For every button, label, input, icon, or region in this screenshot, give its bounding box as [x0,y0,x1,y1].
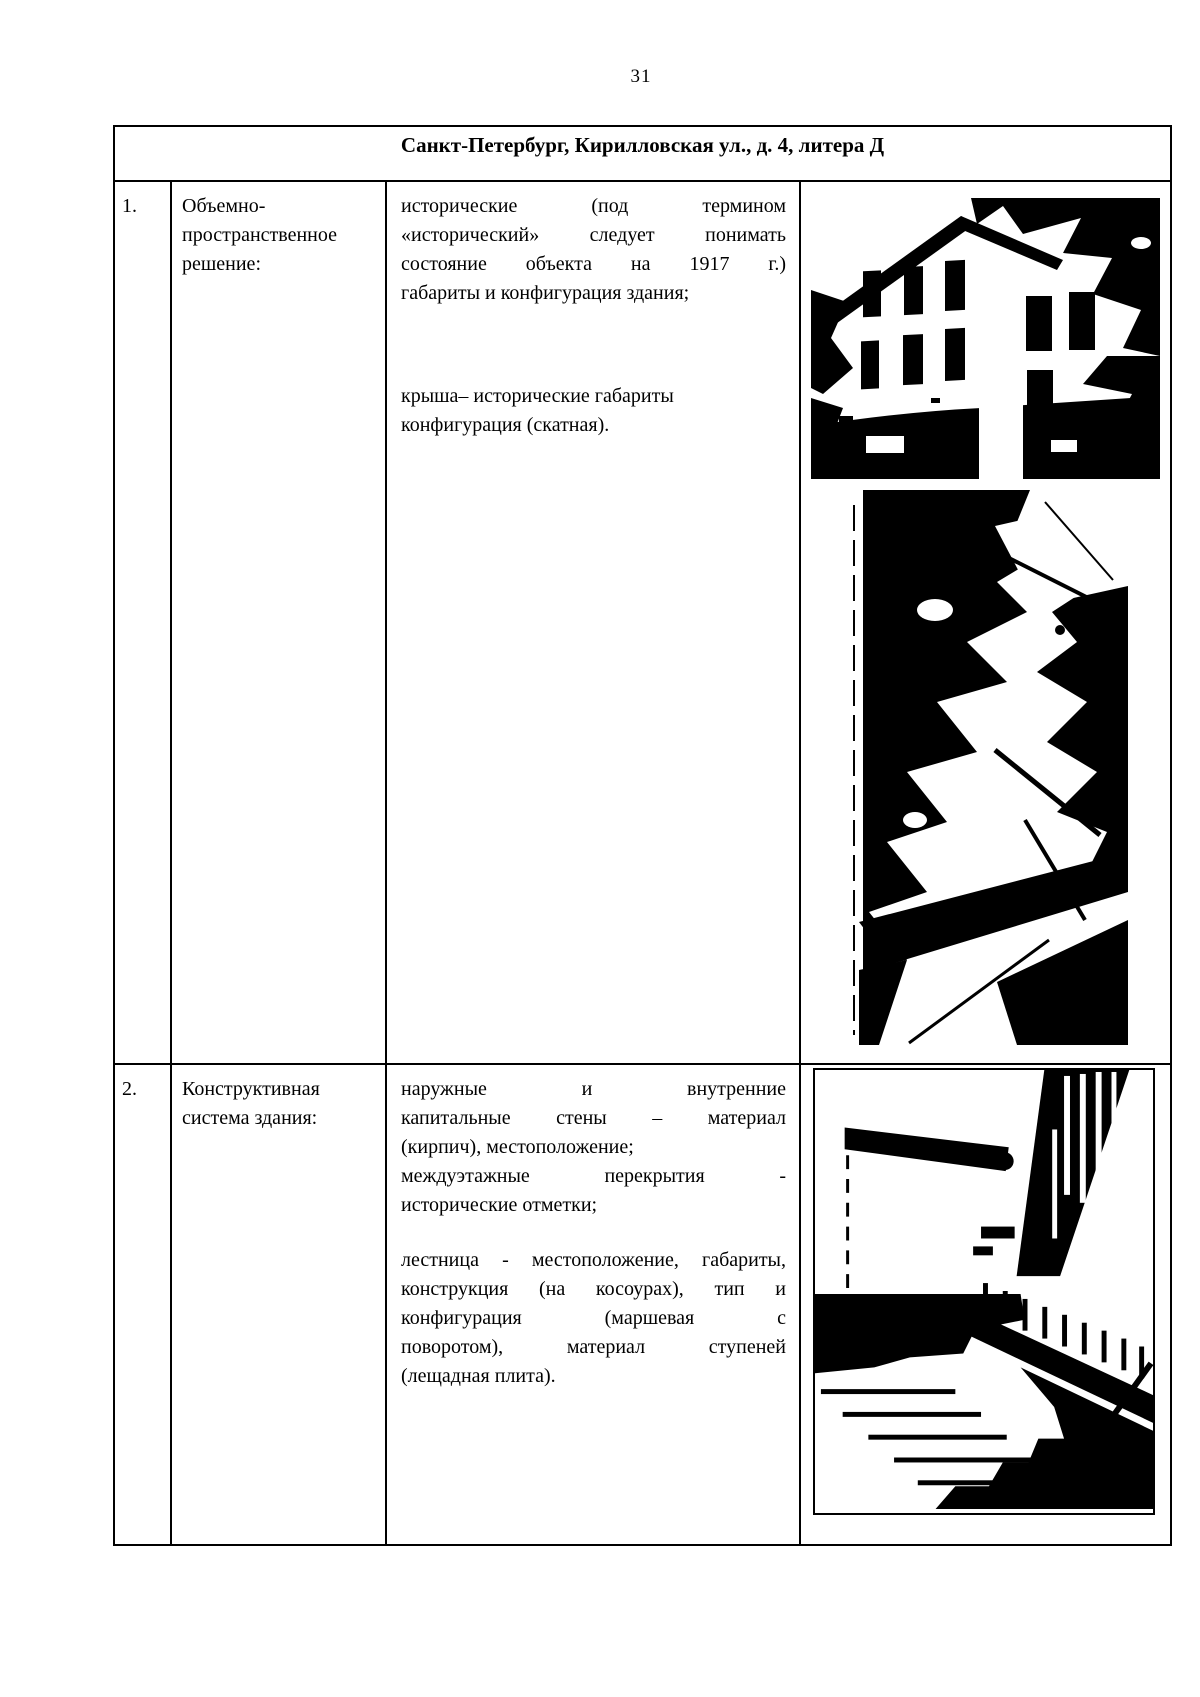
table-header-title: Санкт-Петербург, Кирилловская ул., д. 4,… [115,133,1170,158]
text-line: поворотом), материал ступеней [401,1333,786,1362]
description-paragraph: наружные и внутренние капитальные стены … [401,1075,786,1162]
text-line: «исторический» следует понимать [401,221,786,250]
category-label-cell: Объемно- пространственное решение: [172,182,387,1063]
description-paragraph: междуэтажные перекрытия - исторические о… [401,1162,786,1220]
text-line: габариты и конфигурация здания; [401,279,786,308]
description-paragraph: исторические (под термином «исторический… [401,192,786,308]
text-line: лестница - местоположение, габариты, [401,1246,786,1275]
text-line: конфигурация (маршевая с [401,1304,786,1333]
courtyard-foliage-photo [845,490,1128,1045]
photo-cell [801,182,1170,1063]
building-facade-photo [811,198,1160,479]
text-line: конструкция (на косоурах), тип и [401,1275,786,1304]
text-line: исторические отметки; [401,1191,786,1220]
row-number: 1. [122,192,170,221]
text-line: состояние объекта на 1917 г.) [401,250,786,279]
text-line: система здания: [182,1104,377,1133]
table-row-2: 2. Конструктивная система здания: наружн… [115,1065,1170,1544]
row-number-cell: 2. [115,1065,172,1544]
building-facade-illustration [811,198,1160,479]
photo-cell [801,1065,1170,1544]
text-line: (лещадная плита). [401,1362,786,1391]
text-line: капитальные стены – материал [401,1104,786,1133]
text-line: исторические (под термином [401,192,786,221]
text-line: крыша– исторические габариты [401,382,786,411]
text-line: Объемно- [182,192,377,221]
description-paragraph: лестница - местоположение, габариты, кон… [401,1246,786,1391]
table-row-1: 1. Объемно- пространственное решение: ис… [115,182,1170,1065]
description-cell: исторические (под термином «исторический… [387,182,801,1063]
table-header-row: Санкт-Петербург, Кирилловская ул., д. 4,… [115,127,1170,182]
staircase-illustration [815,1070,1153,1513]
row-number-cell: 1. [115,182,172,1063]
text-line: решение: [182,250,377,279]
text-line: Конструктивная [182,1075,377,1104]
page-number: 31 [41,66,1200,88]
document-page: 31 Санкт-Петербург, Кирилловская ул., д.… [0,0,1200,1697]
document-table: Санкт-Петербург, Кирилловская ул., д. 4,… [113,125,1172,1546]
text-line: междуэтажные перекрытия - [401,1162,786,1191]
row-number: 2. [122,1075,170,1104]
description-paragraph: крыша– исторические габариты конфигураци… [401,382,786,440]
text-line: (кирпич), местоположение; [401,1133,786,1162]
text-line: пространственное [182,221,377,250]
description-cell: наружные и внутренние капитальные стены … [387,1065,801,1544]
text-line: наружные и внутренние [401,1075,786,1104]
category-label-cell: Конструктивная система здания: [172,1065,387,1544]
courtyard-foliage-illustration [845,490,1128,1045]
text-line: конфигурация (скатная). [401,411,786,440]
staircase-photo [813,1068,1155,1515]
